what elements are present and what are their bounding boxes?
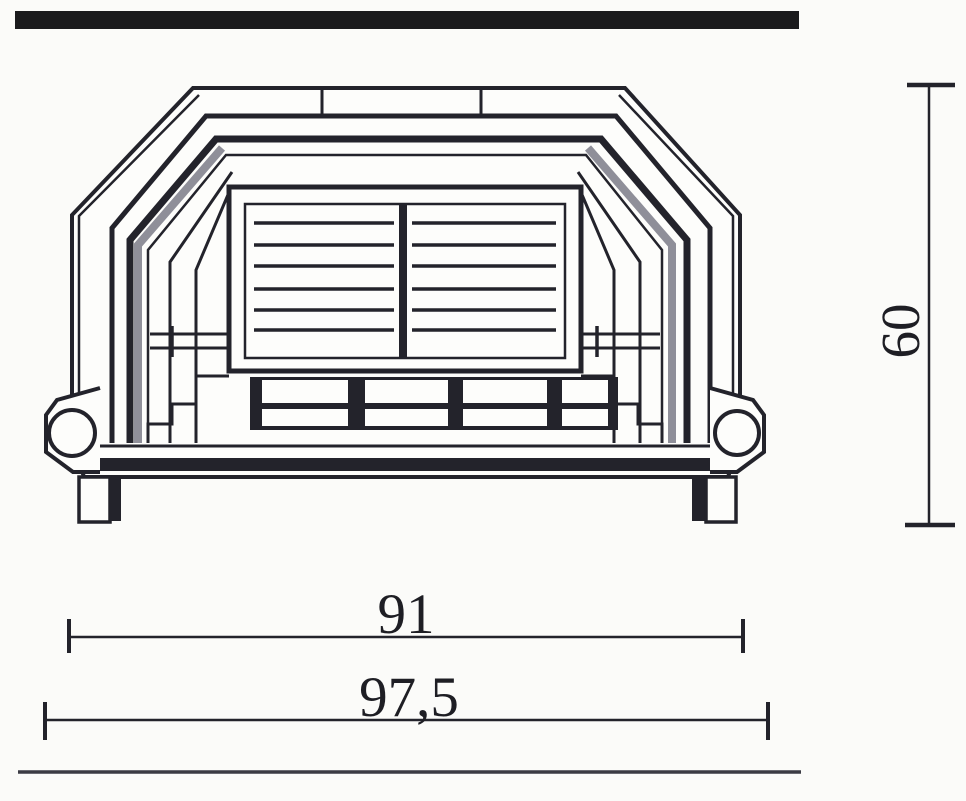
technical-drawing-page: 60 91 97,5: [0, 0, 966, 801]
vent-grate: [250, 377, 618, 430]
leg-right-shadow: [692, 477, 706, 521]
height-dimension-label: 60: [870, 304, 931, 359]
base-band: [87, 458, 724, 471]
wall-top-bar: [15, 11, 799, 29]
grate-slot: [365, 409, 448, 426]
legs: [79, 477, 736, 522]
knob-circle-left: [49, 410, 95, 456]
technical-drawing-svg: 60 91 97,5: [0, 0, 966, 801]
outer-width-label: 97,5: [359, 666, 459, 729]
grate-slot: [262, 380, 348, 403]
knob-circle-right: [715, 411, 759, 455]
grate-slot: [562, 409, 608, 426]
leg-right: [706, 477, 736, 522]
dimension-outer-width: 97,5: [45, 666, 768, 740]
grate-slot: [463, 380, 547, 403]
leg-left-shadow: [110, 477, 121, 521]
grate-slot: [562, 380, 608, 403]
leg-left: [79, 477, 110, 522]
stove-door: [229, 187, 581, 371]
dimension-height: 60: [870, 85, 955, 525]
dimension-inner-width: 91: [69, 583, 743, 653]
inner-width-label: 91: [378, 583, 435, 646]
grate-slot: [262, 409, 348, 426]
grate-slot: [365, 380, 448, 403]
grate-slot: [463, 409, 547, 426]
